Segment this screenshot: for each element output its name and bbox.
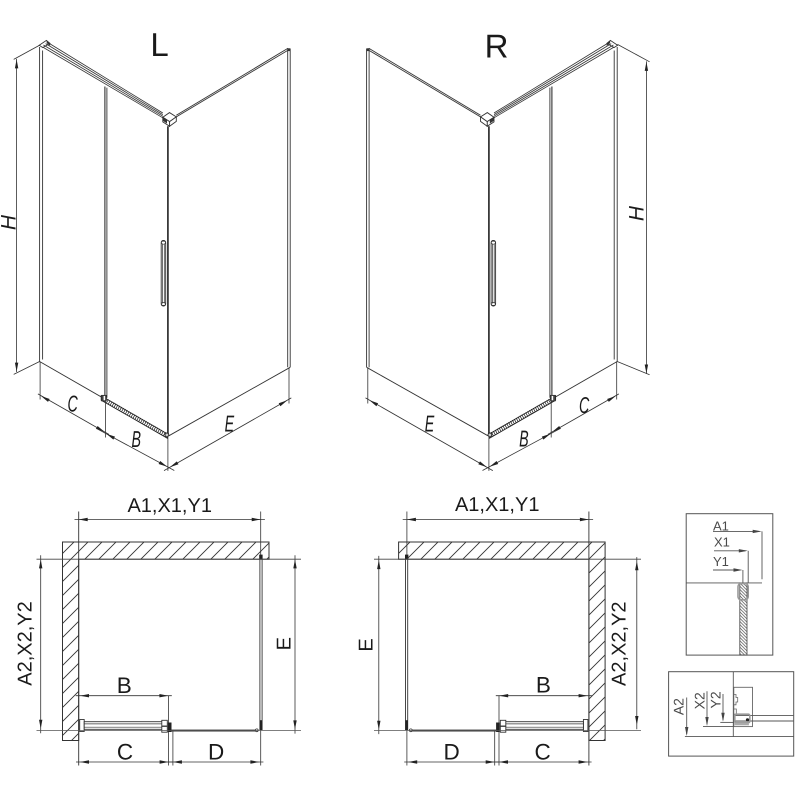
svg-text:Y2: Y2 [708, 691, 724, 708]
svg-text:D: D [443, 740, 459, 765]
svg-text:E: E [273, 637, 295, 650]
svg-text:E: E [356, 638, 378, 651]
svg-text:L: L [150, 26, 168, 63]
svg-text:C: C [117, 740, 133, 765]
svg-text:B: B [519, 426, 529, 452]
svg-text:R: R [485, 28, 509, 65]
svg-text:E: E [425, 410, 435, 436]
svg-text:E: E [225, 410, 235, 436]
svg-text:A1,X1,Y1: A1,X1,Y1 [455, 494, 540, 516]
svg-text:C: C [579, 392, 590, 418]
svg-text:A2,X2,Y2: A2,X2,Y2 [15, 601, 37, 686]
svg-text:H: H [0, 214, 21, 230]
svg-text:B: B [117, 673, 132, 698]
svg-text:C: C [534, 740, 550, 765]
svg-text:A2,X2,Y2: A2,X2,Y2 [609, 601, 631, 686]
svg-text:B: B [132, 426, 142, 452]
svg-text:X1: X1 [714, 535, 730, 550]
svg-text:A2: A2 [671, 698, 687, 715]
svg-text:D: D [208, 740, 224, 765]
svg-text:Y1: Y1 [713, 554, 729, 569]
svg-text:A1,X1,Y1: A1,X1,Y1 [127, 495, 212, 517]
svg-text:B: B [536, 673, 551, 698]
svg-text:A1: A1 [713, 519, 729, 534]
svg-text:H: H [626, 205, 649, 221]
svg-text:C: C [68, 390, 79, 416]
svg-text:X2: X2 [692, 692, 708, 709]
